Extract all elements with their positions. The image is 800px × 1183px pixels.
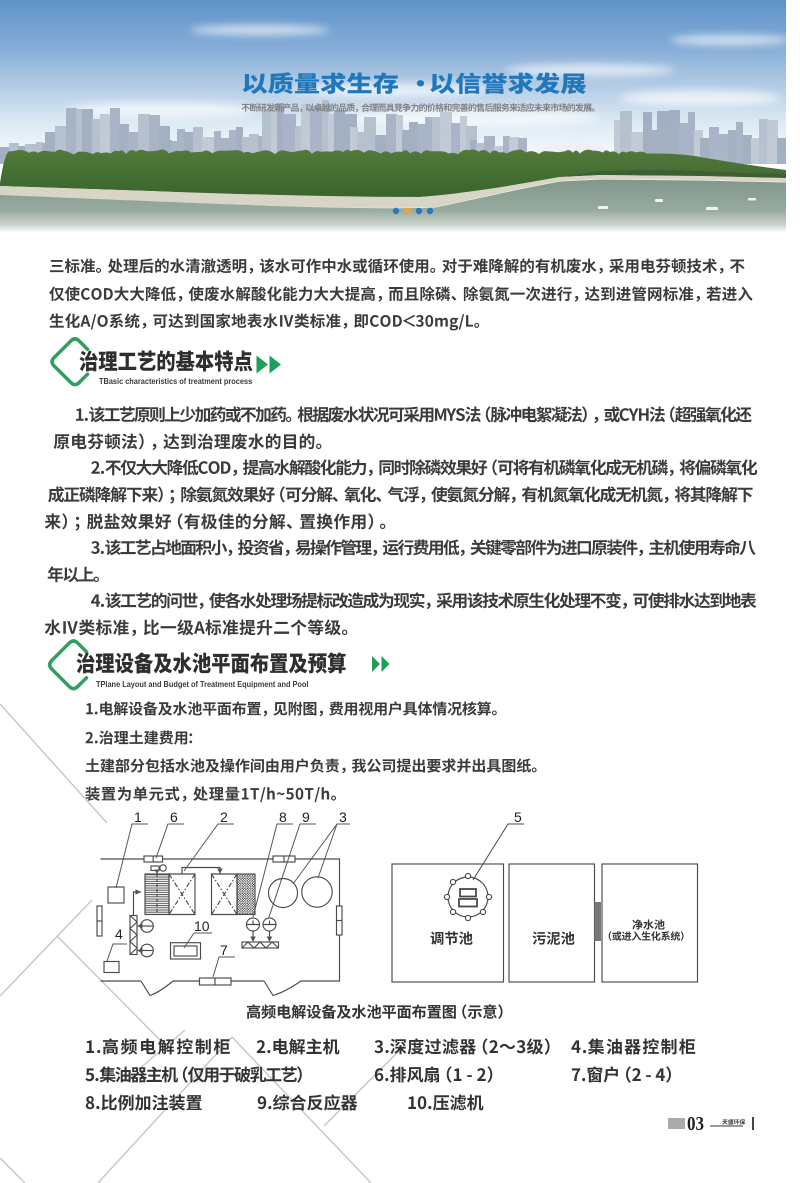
svg-text:2: 2 [220, 810, 228, 825]
svg-text:3: 3 [339, 810, 347, 825]
svg-text:4: 4 [115, 926, 123, 942]
svg-text:6: 6 [170, 810, 178, 825]
svg-text:7: 7 [220, 942, 228, 958]
svg-text:8: 8 [279, 810, 287, 825]
svg-text:10: 10 [194, 918, 210, 934]
svg-text:1: 1 [134, 810, 142, 825]
svg-text:5: 5 [514, 810, 522, 825]
svg-text:9: 9 [302, 810, 310, 825]
